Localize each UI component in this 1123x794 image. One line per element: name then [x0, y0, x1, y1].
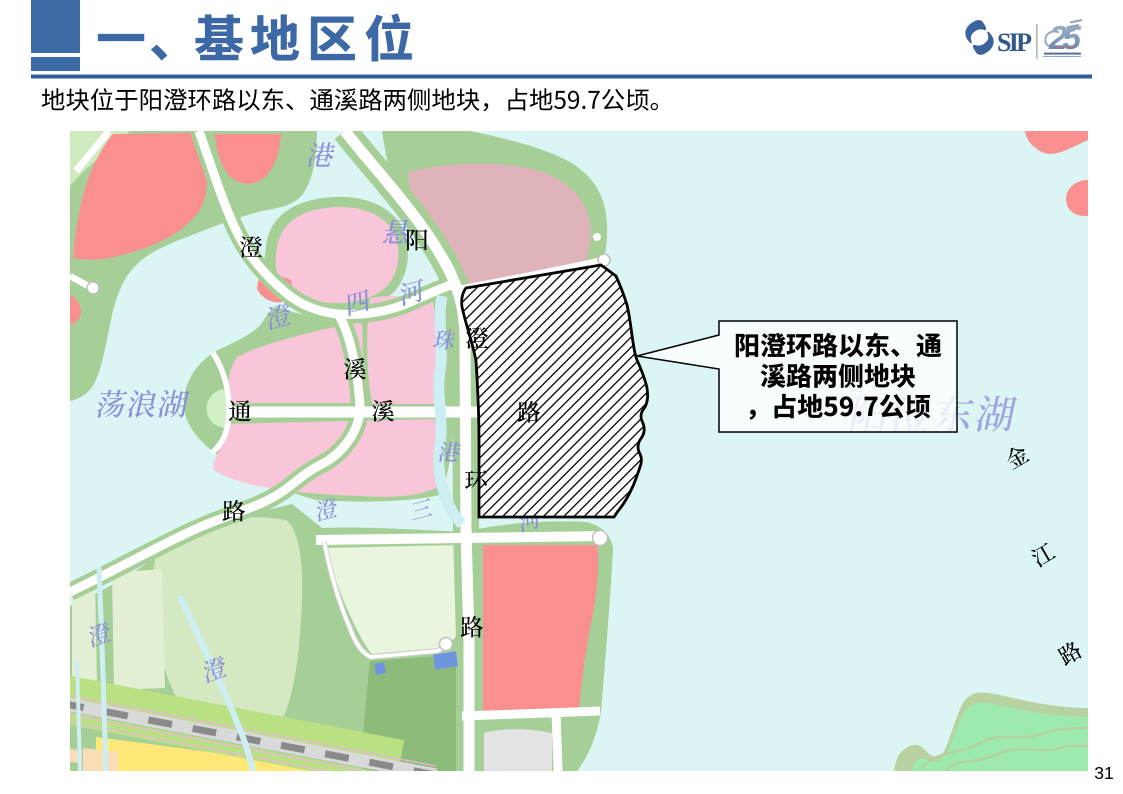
svg-text:31: 31 — [1094, 763, 1113, 783]
svg-text:SIP: SIP — [997, 28, 1032, 57]
